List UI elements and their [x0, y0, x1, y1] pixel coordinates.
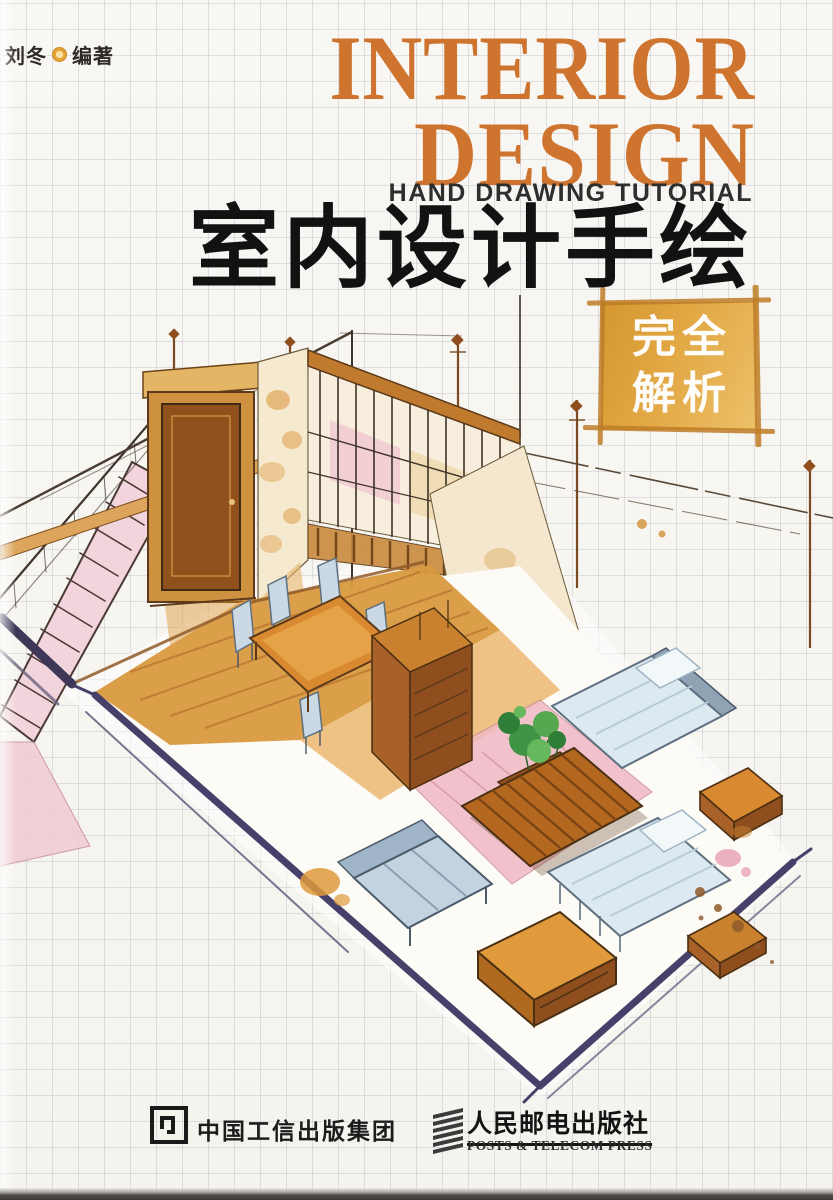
- book-cover: 刘冬 编著 INTERIOR DESIGN HAND DRAWING TUTOR…: [0, 0, 833, 1200]
- press-name-en: POSTS & TELECOM PRESS: [467, 1138, 652, 1154]
- author-role: 编著: [72, 40, 114, 69]
- publishing-group-name: 中国工信出版集团: [197, 1112, 397, 1146]
- badge-stamp: 完全 解析: [601, 302, 757, 430]
- badge-line2: 解析: [626, 366, 732, 422]
- badge-line1: 完全: [626, 310, 732, 366]
- publishing-group-logo-icon: [150, 1106, 188, 1144]
- author-name: 刘冬: [5, 40, 47, 69]
- title-zh: 室内设计手绘: [189, 204, 753, 294]
- perspective-lines: [520, 452, 833, 538]
- title-en-line1: INTERIOR: [329, 22, 755, 114]
- author-line: 刘冬 编著: [5, 40, 114, 69]
- page-bottom-edge: [0, 1188, 833, 1200]
- target-dot-icon: [52, 47, 67, 62]
- press-logo-icon: [425, 1107, 467, 1155]
